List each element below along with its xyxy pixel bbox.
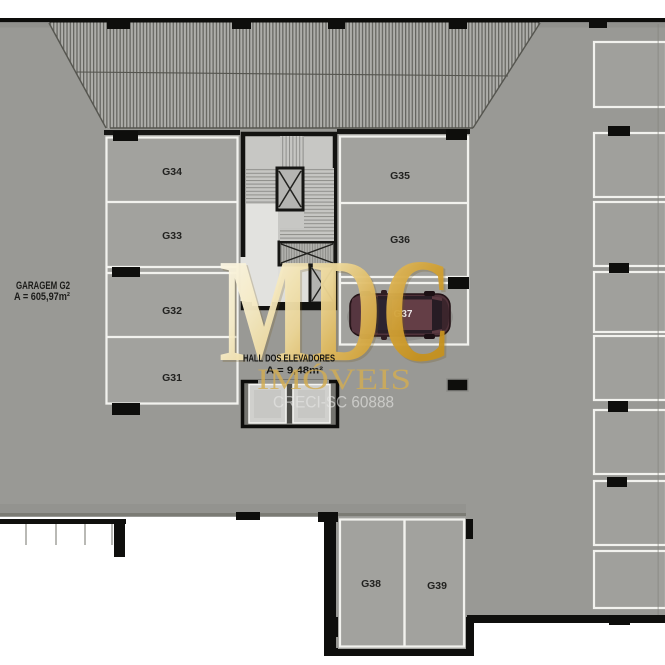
svg-text:G33: G33 [162, 230, 182, 242]
svg-text:G32: G32 [162, 305, 182, 317]
svg-text:G34: G34 [162, 166, 182, 178]
svg-text:IMÓVEIS: IMÓVEIS [257, 363, 411, 396]
svg-text:G31: G31 [162, 372, 182, 384]
svg-text:A = 605,97m²: A = 605,97m² [14, 291, 70, 303]
svg-text:G35: G35 [390, 170, 410, 182]
svg-text:CRECI-SC 60888: CRECI-SC 60888 [273, 393, 394, 412]
svg-text:G39: G39 [427, 580, 447, 592]
svg-text:G38: G38 [361, 578, 381, 590]
